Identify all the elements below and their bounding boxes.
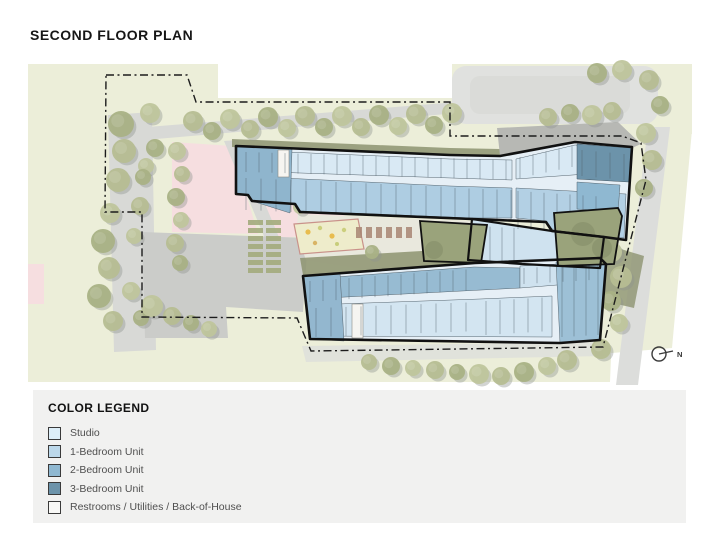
tree-highlight (115, 142, 127, 154)
play-dot (305, 229, 310, 234)
tree-highlight (639, 126, 649, 136)
tree-highlight (103, 206, 113, 216)
tree-highlight (427, 118, 436, 127)
tree-highlight (144, 298, 155, 309)
tree-highlight (148, 141, 157, 150)
tree-highlight (298, 109, 308, 119)
tree-highlight (165, 309, 174, 318)
garden-bed (266, 252, 281, 257)
legend-label: Restrooms / Utilities / Back-of-House (70, 501, 242, 513)
tree-highlight (612, 316, 621, 325)
boh-slot-north (278, 150, 289, 177)
legend-row: 3-Bedroom Unit (48, 480, 242, 499)
legend-label: 1-Bedroom Unit (70, 446, 144, 458)
legend-items: Studio 1-Bedroom Unit 2-Bedroom Unit 3-B… (48, 424, 242, 517)
site-plan: N (0, 0, 720, 390)
page: SECOND FLOOR PLAN (0, 0, 720, 556)
restrooms-swatch (48, 501, 61, 514)
tree-highlight (317, 120, 326, 129)
garden-bed (266, 236, 281, 241)
garden-bed (248, 260, 263, 265)
tree-highlight (560, 353, 570, 363)
legend-label: 2-Bedroom Unit (70, 464, 144, 476)
studio-swatch (48, 427, 61, 440)
tree-highlight (391, 119, 400, 128)
car (366, 227, 372, 238)
car (396, 227, 402, 238)
tree-highlight (174, 257, 182, 265)
three-bedroom-swatch (48, 482, 61, 495)
two-bedroom-swatch (48, 464, 61, 477)
legend-panel: COLOR LEGEND Studio 1-Bedroom Unit 2-Bed… (33, 390, 686, 523)
lawn-pink-4 (28, 264, 44, 304)
tree-highlight (645, 153, 655, 163)
legend-label: 3-Bedroom Unit (70, 483, 144, 495)
north-label: N (677, 350, 682, 359)
garden-bed (248, 244, 263, 249)
tree-highlight (106, 314, 116, 324)
block-3bed-east (577, 144, 631, 182)
car (356, 227, 362, 238)
tree-highlight (428, 363, 437, 372)
play-dot (313, 241, 317, 245)
tree-highlight (124, 284, 133, 293)
tree-highlight (170, 144, 179, 153)
tree-highlight (205, 124, 214, 133)
tree-highlight (517, 365, 527, 375)
tree-highlight (261, 110, 271, 120)
tree-highlight (203, 323, 211, 331)
tree-highlight (605, 104, 614, 113)
tree-highlight (128, 230, 136, 238)
legend-label: Studio (70, 427, 100, 439)
tree-highlight (133, 199, 142, 208)
tree-highlight (169, 190, 178, 199)
tree-highlight (451, 366, 459, 374)
garden-bed (266, 268, 281, 273)
tree-highlight (585, 108, 595, 118)
playground (294, 219, 364, 254)
boh-slot-south (352, 304, 363, 338)
tree-highlight (176, 168, 184, 176)
garden-bed (266, 244, 281, 249)
block-2bed-southeast (556, 258, 606, 343)
car (376, 227, 382, 238)
tree-highlight (541, 110, 550, 119)
tree-highlight (540, 359, 549, 368)
tree-highlight (494, 369, 503, 378)
tree-highlight (101, 260, 112, 271)
legend-row: Restrooms / Utilities / Back-of-House (48, 498, 242, 517)
play-dot (335, 242, 339, 246)
courtyard-tree-icon (425, 241, 443, 259)
tree-highlight (372, 108, 382, 118)
car (406, 227, 412, 238)
playground-area (294, 219, 364, 254)
tree-highlight (223, 112, 233, 122)
tree-highlight (653, 98, 662, 107)
tree-highlight (615, 63, 625, 73)
legend-row: 2-Bedroom Unit (48, 461, 242, 480)
tree-highlight (604, 294, 614, 304)
legend-row: Studio (48, 424, 242, 443)
tree-highlight (243, 122, 252, 131)
tree-highlight (363, 356, 371, 364)
tree-highlight (168, 236, 177, 245)
garden-bed (248, 252, 263, 257)
garden-bed (248, 236, 263, 241)
garden-bed (248, 220, 263, 225)
garden-bed (248, 228, 263, 233)
tree-highlight (335, 109, 345, 119)
tree-highlight (111, 114, 124, 127)
tree-highlight (175, 214, 183, 222)
play-dot (342, 228, 346, 232)
tree-highlight (137, 171, 145, 179)
garden-bed (248, 268, 263, 273)
tree-highlight (472, 367, 482, 377)
tree-highlight (186, 114, 196, 124)
tree-highlight (109, 171, 121, 183)
garden-bed (266, 228, 281, 233)
tree-highlight (563, 106, 572, 115)
play-dot (318, 226, 322, 230)
tree-highlight (384, 359, 393, 368)
tree-highlight (280, 121, 289, 130)
tree-highlight (407, 362, 415, 370)
garden-bed (266, 220, 281, 225)
tree-highlight (135, 312, 143, 320)
car (386, 227, 392, 238)
tree-highlight (354, 120, 363, 129)
tree-highlight (140, 160, 148, 168)
tree-highlight (90, 287, 102, 299)
legend-title: COLOR LEGEND (48, 401, 149, 415)
tree-highlight (143, 106, 153, 116)
tree-highlight (409, 107, 419, 117)
tree-highlight (94, 232, 106, 244)
tree-highlight (642, 73, 652, 83)
play-dot (329, 233, 334, 238)
garden-bed (266, 260, 281, 265)
tree-highlight (367, 247, 374, 254)
legend-row: 1-Bedroom Unit (48, 443, 242, 462)
tree-highlight (185, 317, 193, 325)
one-bedroom-swatch (48, 445, 61, 458)
tree-highlight (590, 66, 600, 76)
